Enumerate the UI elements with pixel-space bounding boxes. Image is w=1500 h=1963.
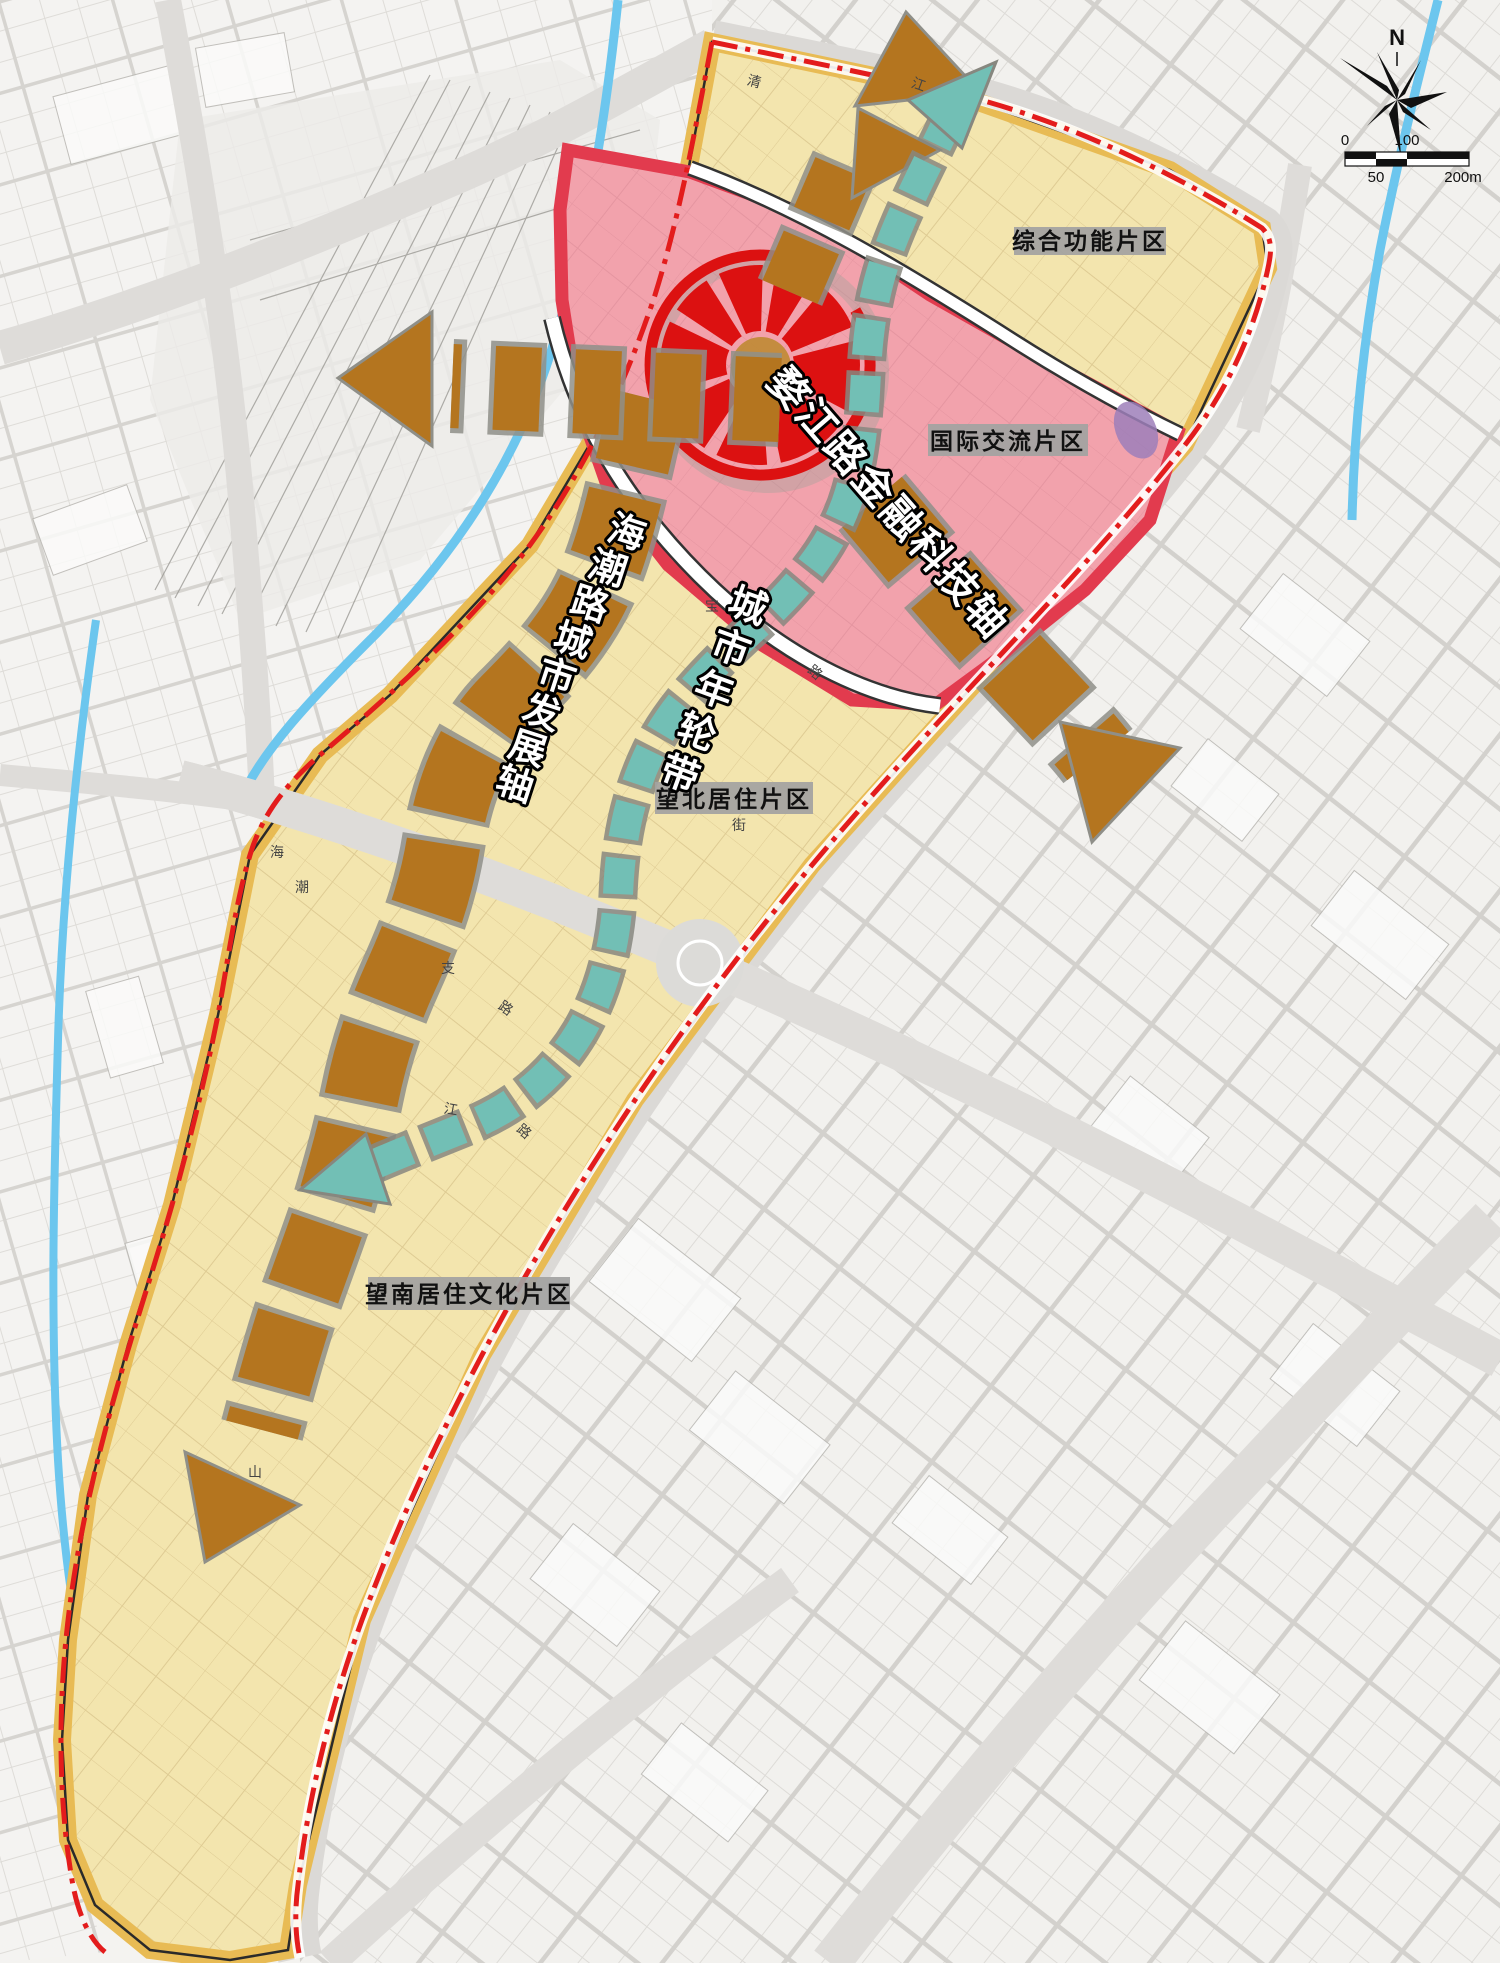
planning-map-canvas: 综合功能片区 国际交流片区 望北居住片区 望南居住文化片区 婺江路金融科技轴 城…	[0, 0, 1500, 1963]
road-label: 潮	[295, 879, 309, 895]
scale-tick-50: 50	[1368, 169, 1385, 186]
region-label-international: 国际交流片区	[928, 424, 1088, 456]
region-label-text: 综合功能片区	[1012, 228, 1168, 254]
region-label-text: 望南居住文化片区	[365, 1281, 573, 1307]
scale-tick-0: 0	[1341, 132, 1349, 149]
road-label: 支	[441, 960, 455, 976]
road-label: 街	[732, 817, 746, 833]
scale-tick-100: 100	[1394, 132, 1419, 149]
region-label-wangnan: 望南居住文化片区	[365, 1277, 573, 1310]
road-label: 宝	[705, 598, 719, 614]
north-label: N	[1389, 25, 1405, 50]
road-label: 江	[443, 1100, 460, 1118]
region-label-text: 国际交流片区	[930, 428, 1086, 454]
road-label: 海	[270, 844, 284, 860]
planning-map: 综合功能片区 国际交流片区 望北居住片区 望南居住文化片区 婺江路金融科技轴 城…	[0, 0, 1500, 1963]
road-label: 山	[248, 1464, 262, 1480]
region-label-comprehensive: 综合功能片区	[1012, 227, 1168, 255]
scale-tick-200: 200m	[1444, 169, 1482, 186]
